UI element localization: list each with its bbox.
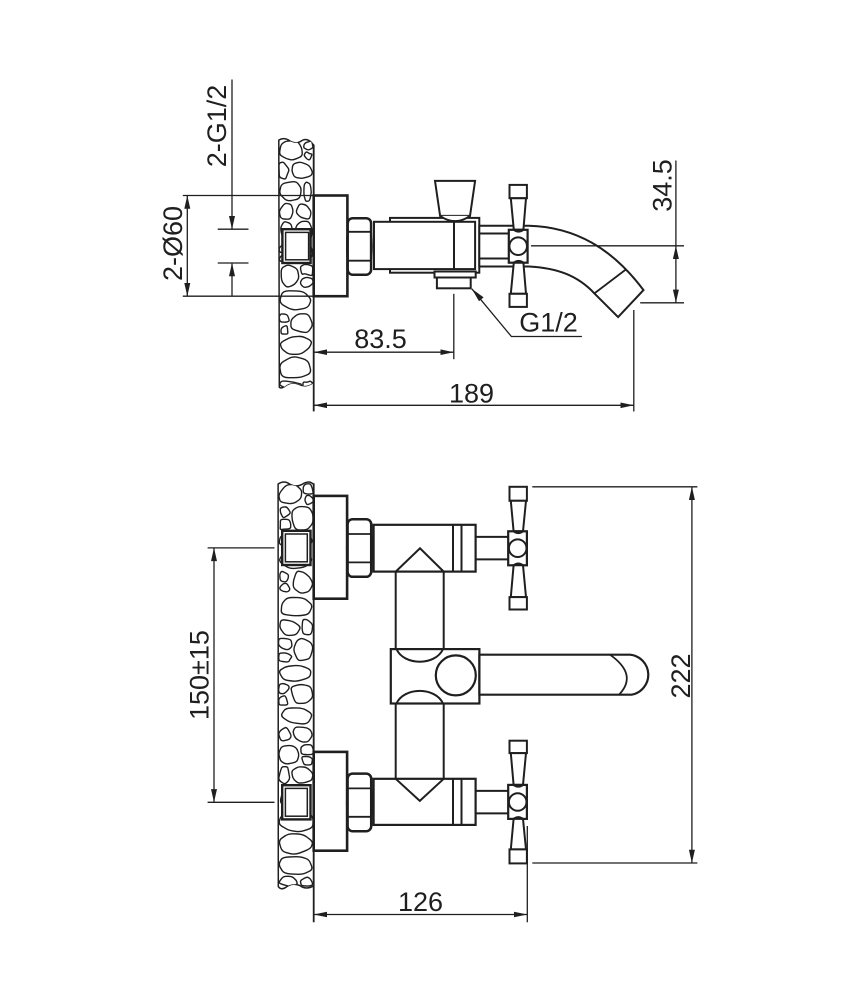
- svg-text:150±15: 150±15: [185, 630, 215, 720]
- svg-text:222: 222: [666, 653, 696, 698]
- svg-text:2-Ø60: 2-Ø60: [158, 206, 188, 281]
- svg-text:83.5: 83.5: [354, 324, 407, 354]
- svg-text:34.5: 34.5: [648, 159, 678, 212]
- svg-text:2-G1/2: 2-G1/2: [202, 85, 232, 168]
- svg-text:126: 126: [398, 887, 443, 917]
- svg-text:G1/2: G1/2: [519, 308, 578, 338]
- svg-text:189: 189: [449, 379, 494, 409]
